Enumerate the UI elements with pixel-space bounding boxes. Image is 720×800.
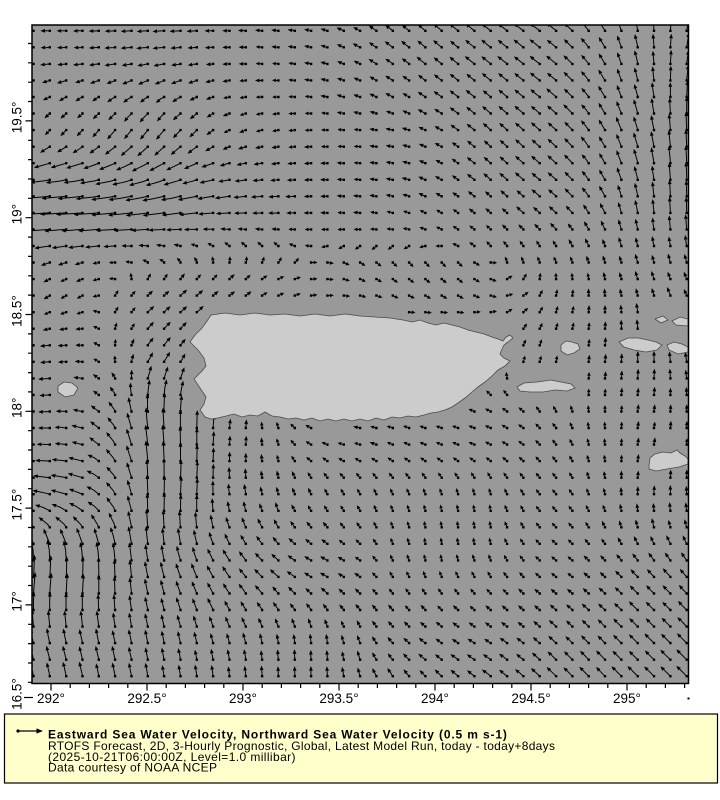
svg-text:294.5°: 294.5° xyxy=(511,691,550,706)
svg-text:293°: 293° xyxy=(229,691,257,706)
svg-text:292.5°: 292.5° xyxy=(127,691,166,706)
svg-text:292°: 292° xyxy=(37,691,65,706)
svg-text:Data courtesy of NOAA NCEP: Data courtesy of NOAA NCEP xyxy=(48,761,217,775)
svg-text:18°: 18° xyxy=(10,398,25,418)
svg-text:17.5°: 17.5° xyxy=(10,489,25,521)
svg-text:16.5°: 16.5° xyxy=(10,678,25,710)
svg-text:294°: 294° xyxy=(421,691,449,706)
svg-text:293.5°: 293.5° xyxy=(319,691,358,706)
svg-text:19°: 19° xyxy=(10,204,25,224)
svg-text:19.5°: 19.5° xyxy=(10,102,25,134)
svg-text:18.5°: 18.5° xyxy=(10,295,25,327)
svg-text:17°: 17° xyxy=(10,591,25,611)
svg-text:295°: 295° xyxy=(613,691,641,706)
